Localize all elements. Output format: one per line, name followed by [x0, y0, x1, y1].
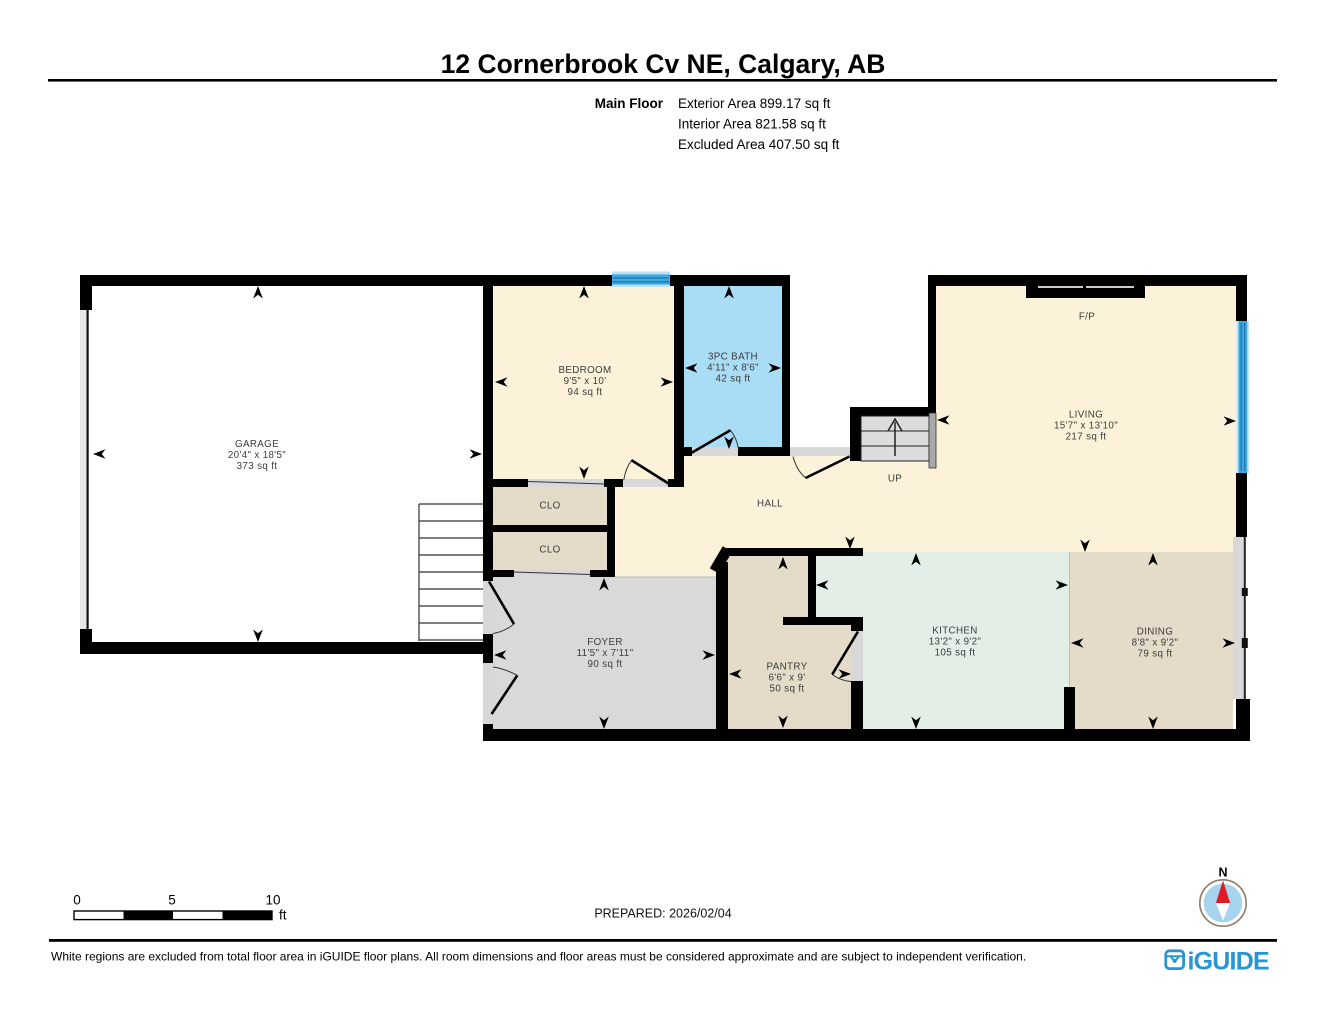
- svg-text:Exterior Area 899.17 sq ft: Exterior Area 899.17 sq ft: [678, 96, 831, 111]
- svg-text:6'6" x 9': 6'6" x 9': [768, 672, 805, 683]
- svg-text:White regions are excluded fro: White regions are excluded from total fl…: [51, 950, 1026, 964]
- svg-text:9'5" x 10': 9'5" x 10': [564, 376, 607, 387]
- svg-text:79 sq ft: 79 sq ft: [1138, 648, 1173, 659]
- svg-text:10: 10: [265, 892, 280, 907]
- svg-text:42 sq ft: 42 sq ft: [716, 373, 751, 384]
- svg-text:KITCHEN: KITCHEN: [932, 625, 977, 636]
- svg-text:CLO: CLO: [539, 544, 560, 555]
- svg-text:0: 0: [73, 892, 81, 907]
- svg-text:4'11" x 8'6": 4'11" x 8'6": [707, 362, 759, 373]
- svg-text:F/P: F/P: [1079, 311, 1095, 322]
- svg-text:217 sq ft: 217 sq ft: [1066, 431, 1107, 442]
- svg-text:11'5" x 7'11": 11'5" x 7'11": [577, 648, 634, 659]
- svg-text:N: N: [1218, 866, 1227, 880]
- svg-text:8'8" x 9'2": 8'8" x 9'2": [1132, 637, 1179, 648]
- svg-text:GARAGE: GARAGE: [235, 439, 279, 450]
- svg-text:LIVING: LIVING: [1069, 409, 1103, 420]
- svg-text:373 sq ft: 373 sq ft: [237, 461, 278, 472]
- svg-text:PREPARED: 2026/02/04: PREPARED: 2026/02/04: [594, 907, 731, 921]
- svg-text:iGUIDE: iGUIDE: [1188, 948, 1269, 976]
- svg-text:DINING: DINING: [1137, 626, 1173, 637]
- svg-text:ft: ft: [279, 908, 287, 923]
- svg-text:20'4" x 18'5": 20'4" x 18'5": [228, 450, 286, 461]
- svg-text:5: 5: [168, 892, 176, 907]
- svg-text:CLO: CLO: [539, 500, 560, 511]
- svg-text:105 sq ft: 105 sq ft: [935, 647, 976, 658]
- svg-text:12 Cornerbrook Cv NE, Calgary,: 12 Cornerbrook Cv NE, Calgary, AB: [441, 49, 886, 79]
- svg-text:94 sq ft: 94 sq ft: [568, 387, 603, 398]
- svg-text:3PC BATH: 3PC BATH: [708, 351, 758, 362]
- svg-text:Main Floor: Main Floor: [595, 96, 664, 111]
- svg-text:50 sq ft: 50 sq ft: [770, 683, 805, 694]
- svg-text:Interior Area 821.58 sq ft: Interior Area 821.58 sq ft: [678, 116, 826, 131]
- svg-text:FOYER: FOYER: [587, 637, 623, 648]
- svg-text:UP: UP: [888, 473, 902, 484]
- svg-text:HALL: HALL: [757, 498, 783, 509]
- svg-text:90 sq ft: 90 sq ft: [588, 659, 623, 670]
- svg-text:Excluded Area 407.50 sq ft: Excluded Area 407.50 sq ft: [678, 137, 840, 152]
- svg-text:PANTRY: PANTRY: [767, 661, 808, 672]
- svg-text:15'7" x 13'10": 15'7" x 13'10": [1054, 420, 1118, 431]
- svg-text:BEDROOM: BEDROOM: [558, 365, 611, 376]
- svg-text:13'2" x 9'2": 13'2" x 9'2": [929, 636, 982, 647]
